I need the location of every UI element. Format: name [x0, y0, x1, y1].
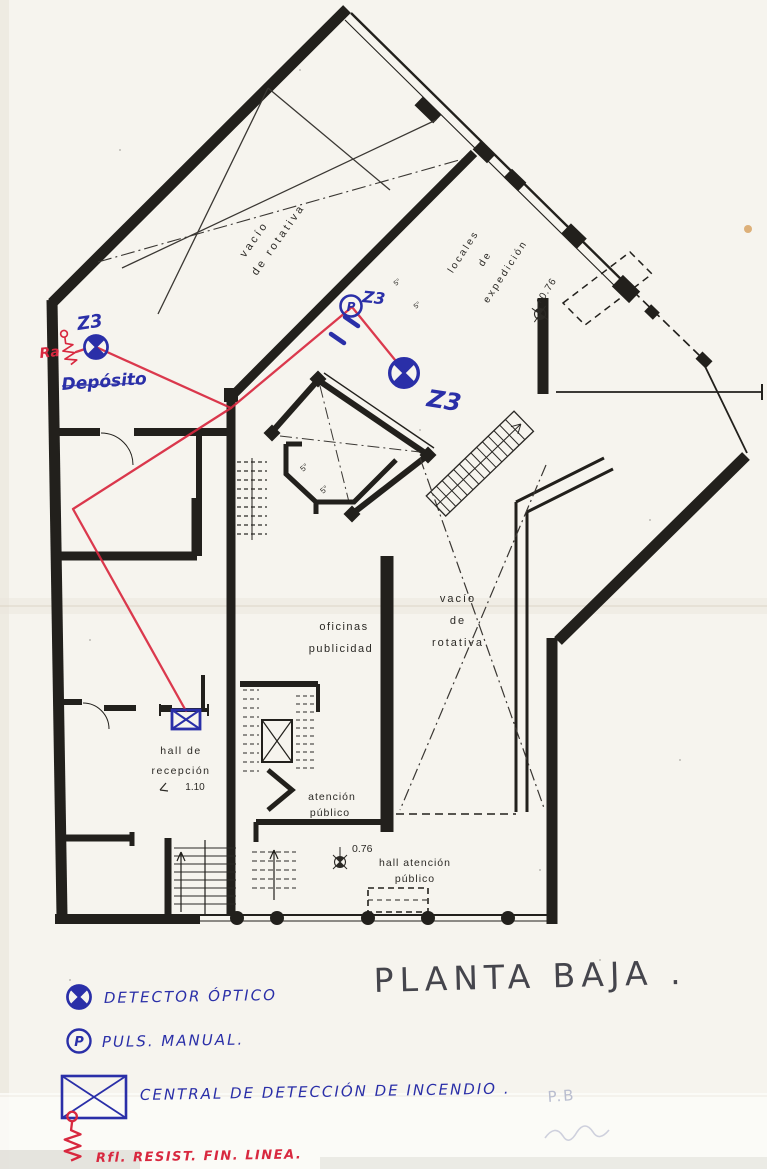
scanned-floor-plan-page: vacío de rotativa locales de expedición … [0, 0, 767, 1169]
resistor-mark-label: Ra [39, 344, 61, 362]
level-value-hall-recepcion: 1.10 [185, 782, 205, 793]
zone-label-z3-3: Z3 [424, 384, 463, 417]
room-label-vacio-mid-1: vacío [440, 593, 476, 605]
room-label-hall-atencion-2: público [395, 873, 435, 885]
floor-plan-drawing: vacío de rotativa locales de expedición … [0, 0, 767, 1169]
room-label-atencion-1: atención [308, 791, 356, 803]
pencil-note-pb: P.B [547, 1086, 576, 1106]
paper-stain [744, 225, 752, 233]
left-edge-shadow [0, 0, 9, 1169]
room-label-hall-recepcion-2: recepción [151, 765, 210, 777]
legend-pulsador-label: PULS. MANUAL. [102, 1031, 245, 1051]
manual-call-point-letter: P [347, 300, 356, 314]
room-label-atencion-2: público [310, 807, 350, 819]
drawing-title: PLANTA BAJA . [373, 953, 687, 1000]
bottom-smudge-right [320, 1157, 767, 1169]
room-label-vacio-mid-3: rotativa [432, 637, 484, 649]
legend-detector-label: DETECTOR ÓPTICO [104, 985, 277, 1007]
room-label-hall-recepcion-1: hall de [160, 745, 201, 757]
room-label-vacio-mid-2: de [450, 615, 466, 627]
legend-pulsador-letter: P [74, 1035, 84, 1050]
level-value-hall-atencion: 0.76 [352, 843, 373, 855]
room-label-hall-atencion-1: hall atención [379, 857, 451, 869]
zone-label-z3-2: Z3 [361, 287, 387, 308]
room-label-oficinas-1: oficinas [319, 621, 368, 633]
zone-label-z3-1: Z3 [75, 311, 104, 335]
room-label-oficinas-2: publicidad [309, 643, 374, 655]
